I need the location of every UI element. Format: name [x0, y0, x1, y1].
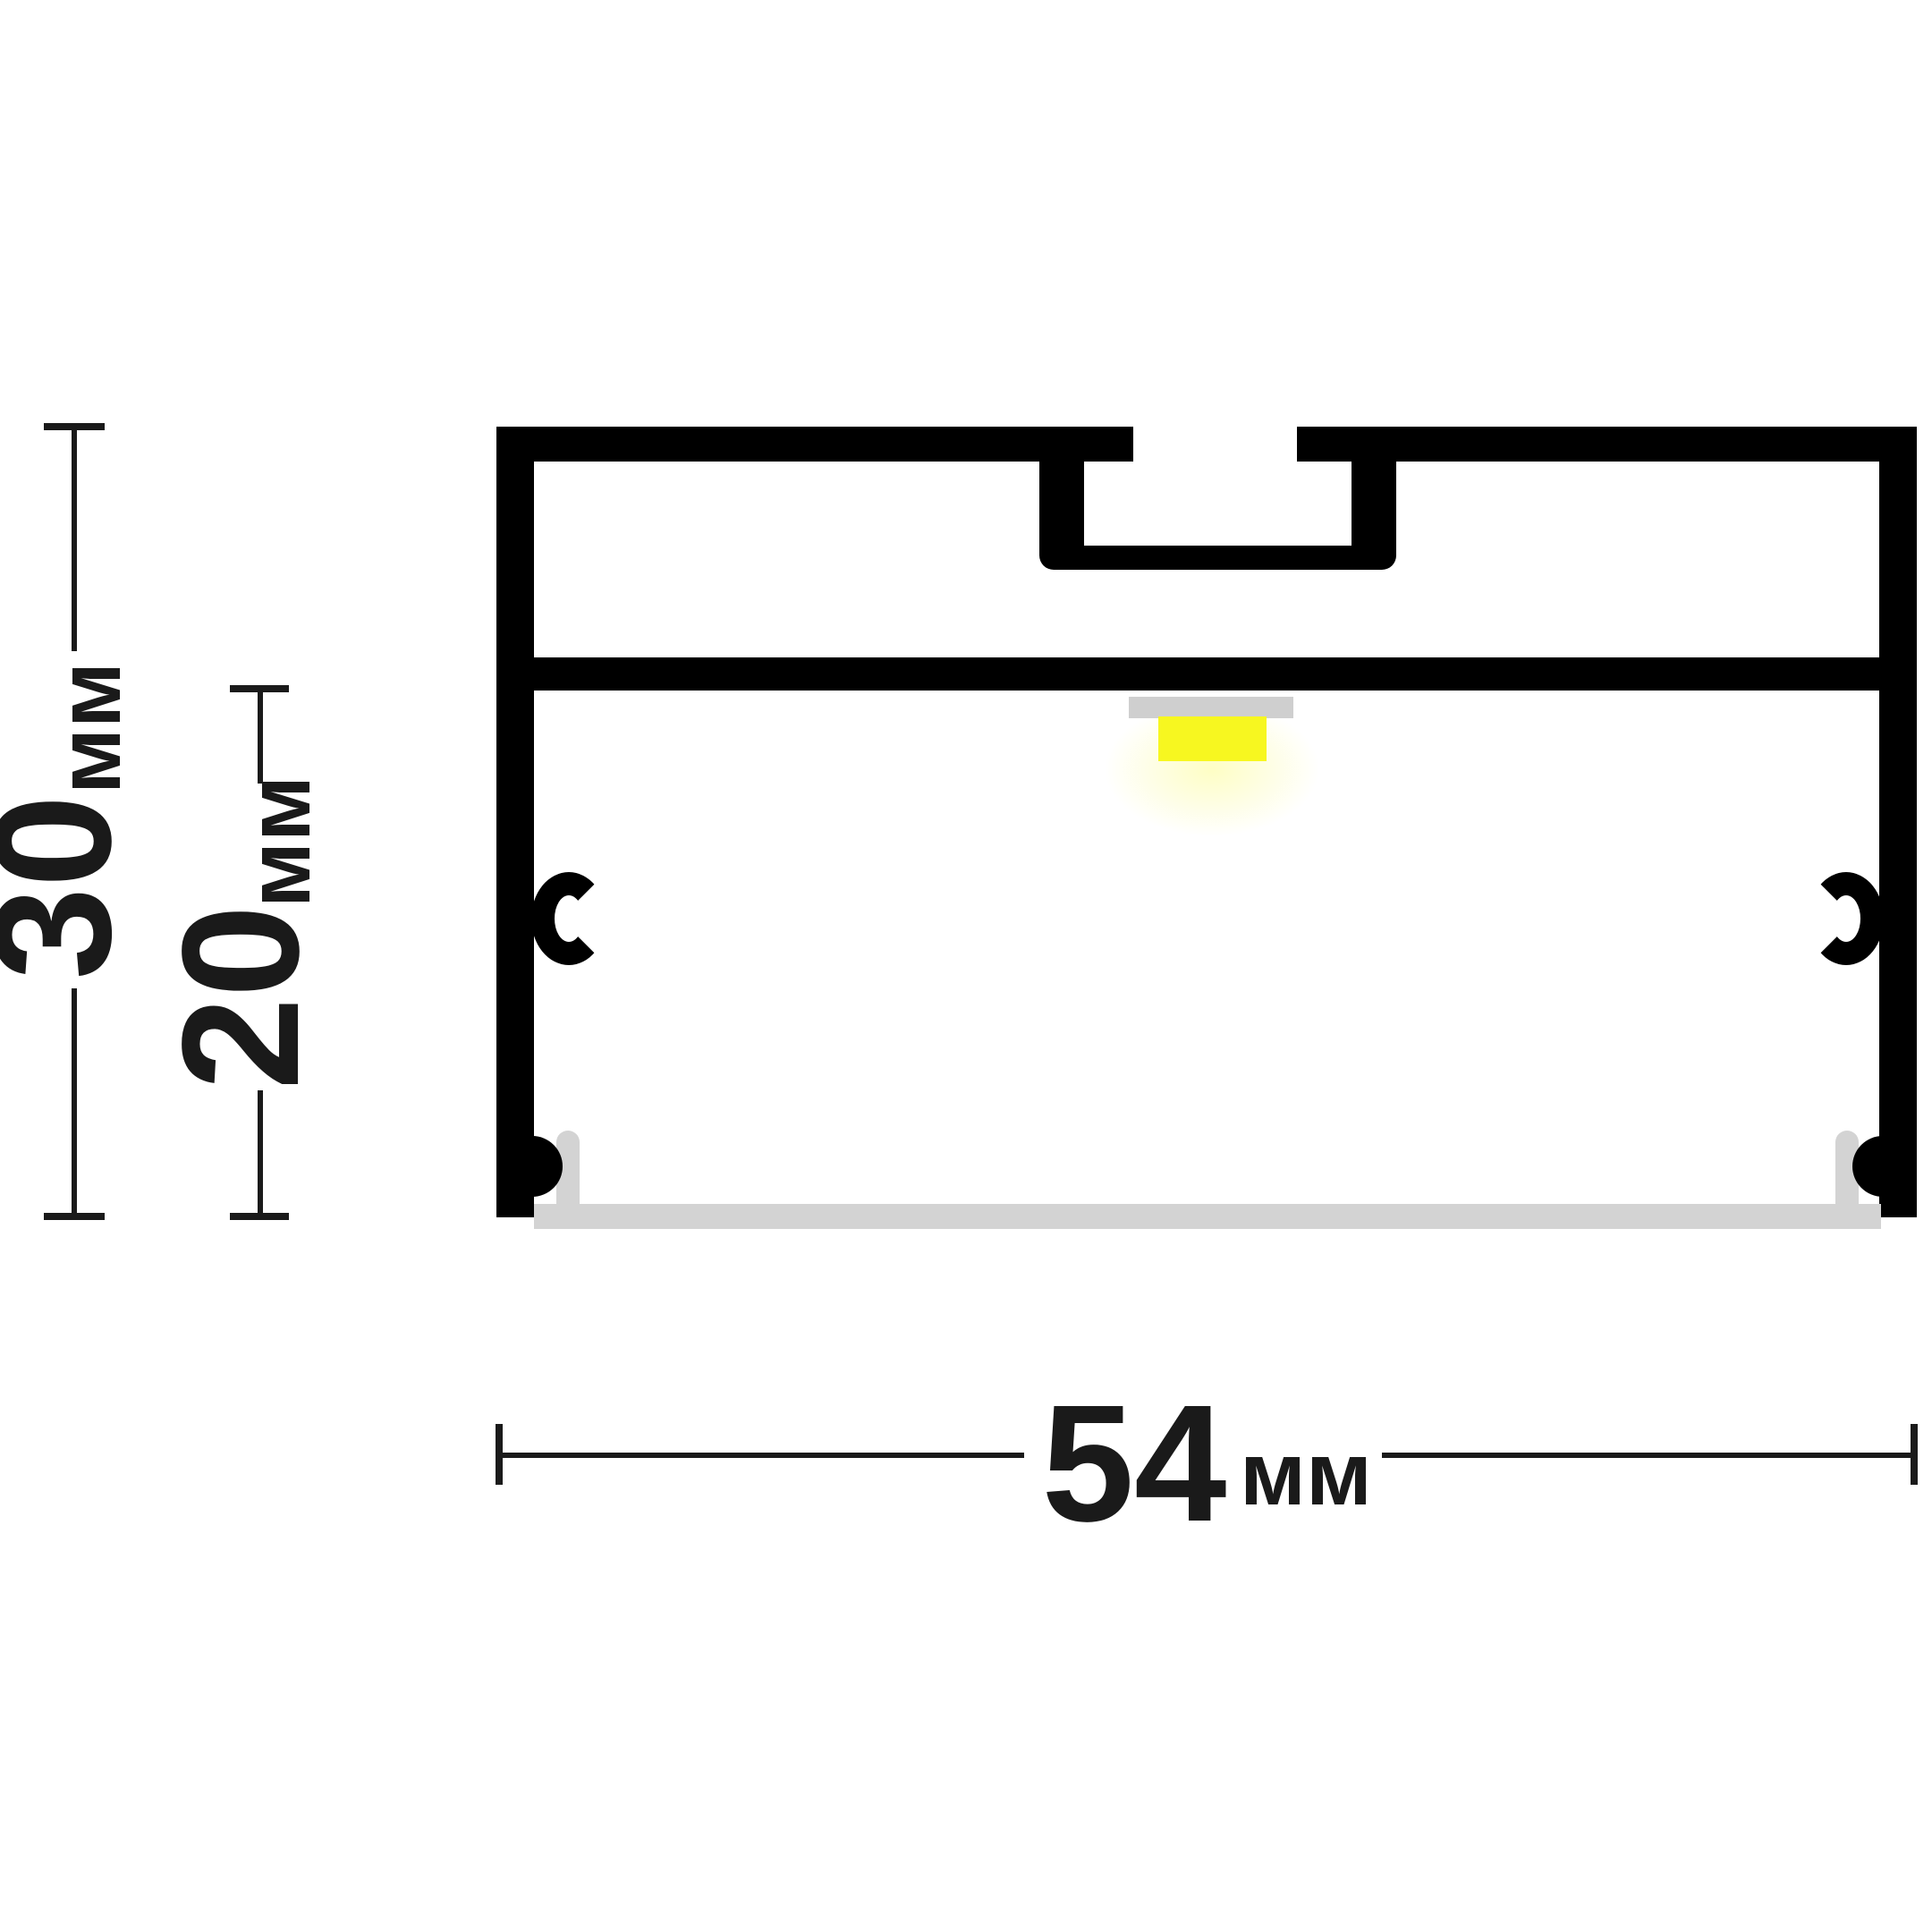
profile-top-bar-left — [496, 427, 1133, 462]
diffuser-panel — [534, 1204, 1881, 1229]
mounting-slot-bottom — [1039, 546, 1396, 570]
dim-height-inner-tick-bottom — [230, 1213, 289, 1220]
dim-width-line-right — [1382, 1453, 1914, 1458]
dim-height-inner-line-lower — [258, 1090, 263, 1220]
dim-height-total-unit: мм — [45, 670, 134, 786]
drawing-canvas: 30 мм 20 мм 54 мм — [0, 0, 1932, 1932]
clip-groove-left — [531, 872, 606, 965]
dim-width-tick-right — [1911, 1424, 1918, 1485]
dim-height-total-line-upper — [72, 427, 77, 651]
clip-groove-right — [1809, 872, 1884, 965]
dim-width-value: 54 — [1036, 1379, 1233, 1549]
dim-width-line-left — [499, 1453, 1024, 1458]
inner-shelf-divider — [514, 657, 1901, 691]
profile-right-wall — [1879, 427, 1917, 1217]
dim-height-total-line-lower — [72, 988, 77, 1220]
dim-height-total-tick-top — [44, 423, 105, 430]
dim-width-tick-left — [496, 1424, 503, 1485]
profile-left-wall — [496, 427, 534, 1217]
dim-height-inner-value: 20 — [157, 899, 326, 1096]
dim-width-unit: мм — [1248, 1431, 1364, 1521]
mounting-slot-left-wall — [1039, 460, 1084, 549]
dim-height-inner-tick-top — [230, 685, 289, 692]
dim-height-inner-unit: мм — [234, 784, 324, 900]
mounting-slot-right-wall — [1352, 460, 1396, 549]
led-pcb — [1129, 697, 1293, 718]
dim-height-total-value: 30 — [0, 789, 139, 986]
led-chip — [1158, 716, 1267, 761]
profile-top-bar-right — [1297, 427, 1917, 462]
dim-height-inner-line-upper — [258, 689, 263, 784]
dim-height-total-tick-bottom — [44, 1213, 105, 1220]
